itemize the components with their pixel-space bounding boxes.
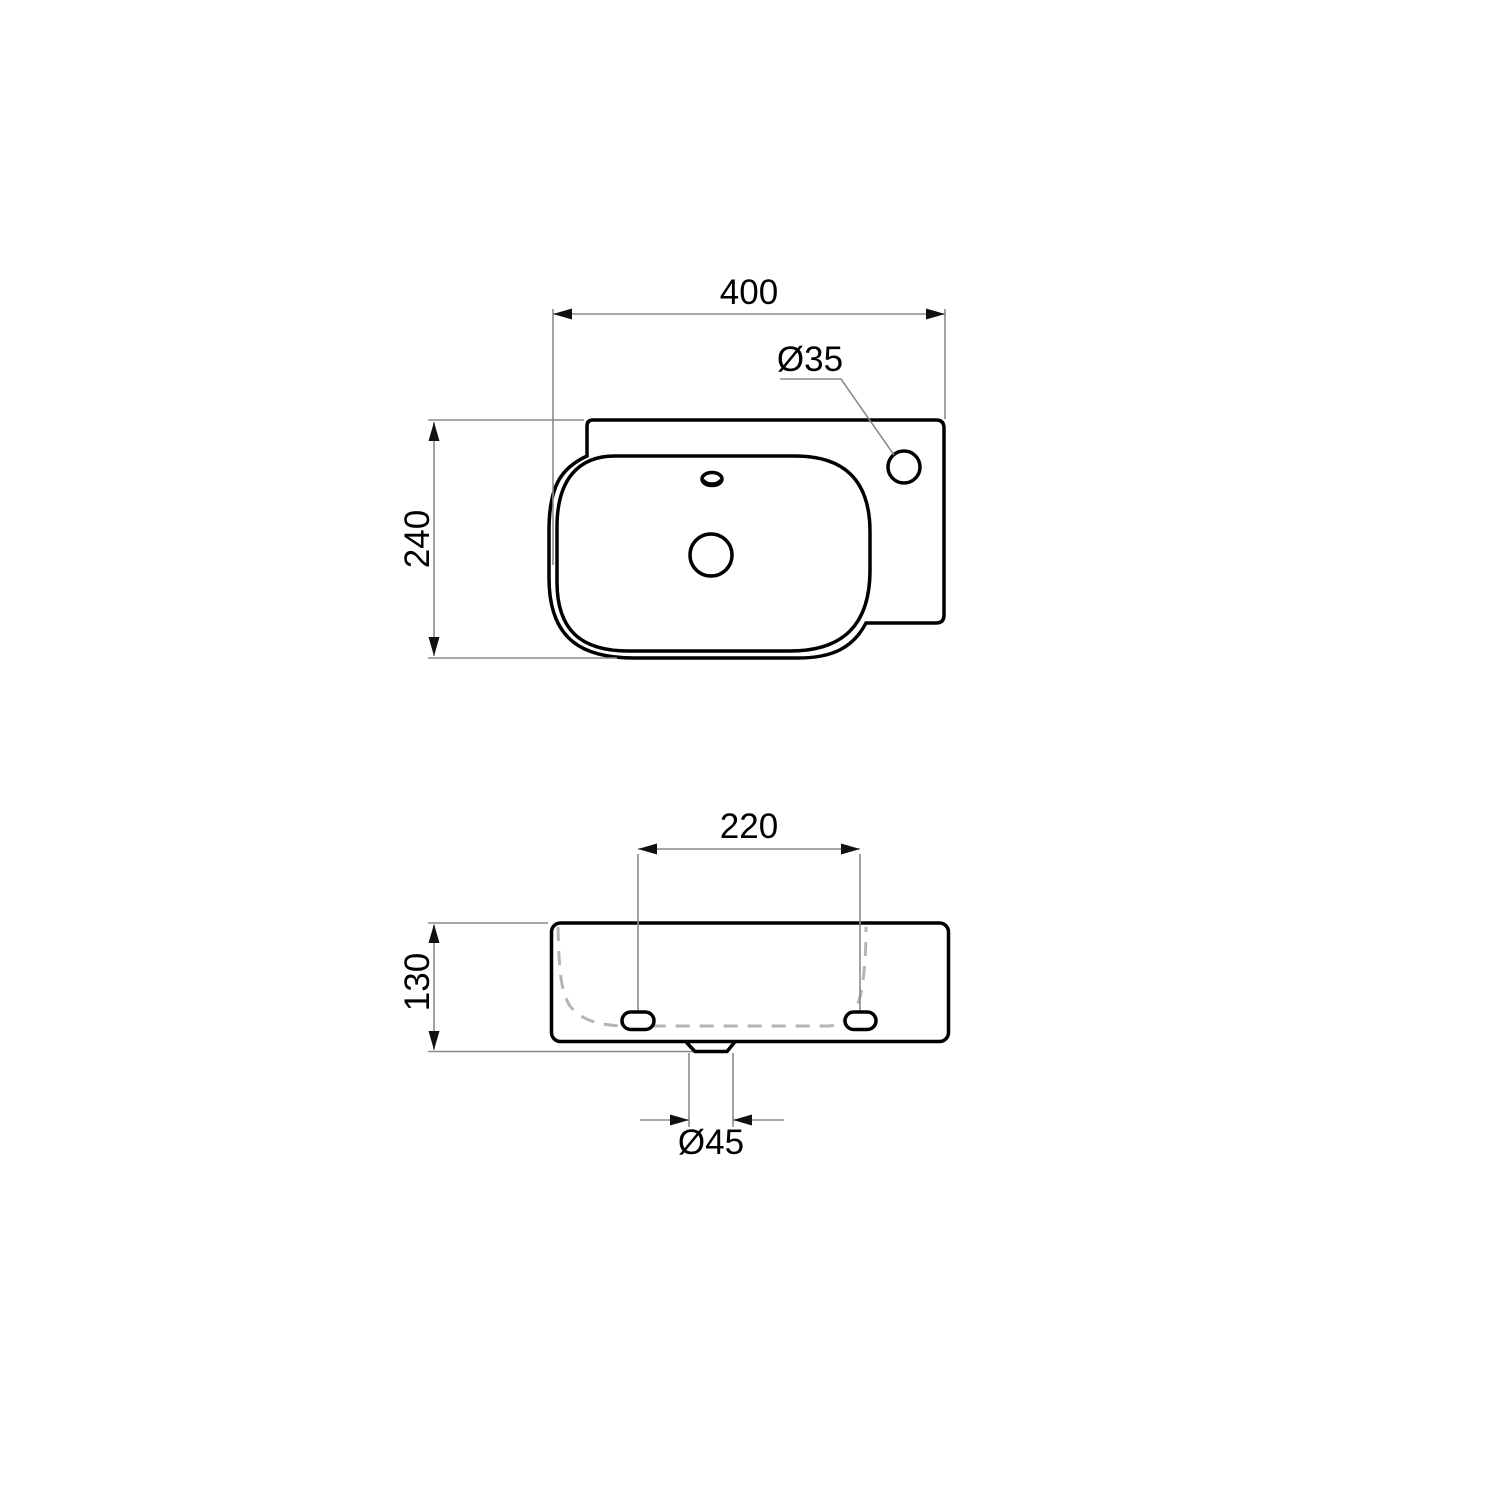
drawing-sheet: 400 240 Ø35 xyxy=(0,0,1500,1500)
arrowhead-130-bottom xyxy=(429,1031,440,1050)
arrowhead-220-right xyxy=(841,844,860,855)
arrowhead-400-left xyxy=(553,309,572,320)
arrowhead-240-top xyxy=(429,422,440,441)
arrowhead-130-top xyxy=(429,924,440,943)
fixing-hole-left xyxy=(622,1012,654,1030)
drain-boss-front-view xyxy=(687,1043,734,1052)
dimension-text-depth: 240 xyxy=(398,510,437,568)
dimension-text-tap-hole: Ø35 xyxy=(777,340,843,379)
technical-drawing-canvas: 400 240 Ø35 xyxy=(0,0,1500,1500)
top-view: 400 240 Ø35 xyxy=(398,273,945,658)
fixing-hole-right xyxy=(845,1012,876,1030)
front-view: 220 130 Ø45 xyxy=(398,807,949,1162)
dimension-text-width: 400 xyxy=(720,273,778,312)
dimension-text-height: 130 xyxy=(398,953,437,1011)
arrowhead-220-left xyxy=(638,844,657,855)
arrowhead-400-right xyxy=(926,309,945,320)
dimension-text-drain: Ø45 xyxy=(678,1123,744,1162)
arrowhead-240-bottom xyxy=(429,637,440,656)
dimension-text-hole-spacing: 220 xyxy=(720,807,778,846)
